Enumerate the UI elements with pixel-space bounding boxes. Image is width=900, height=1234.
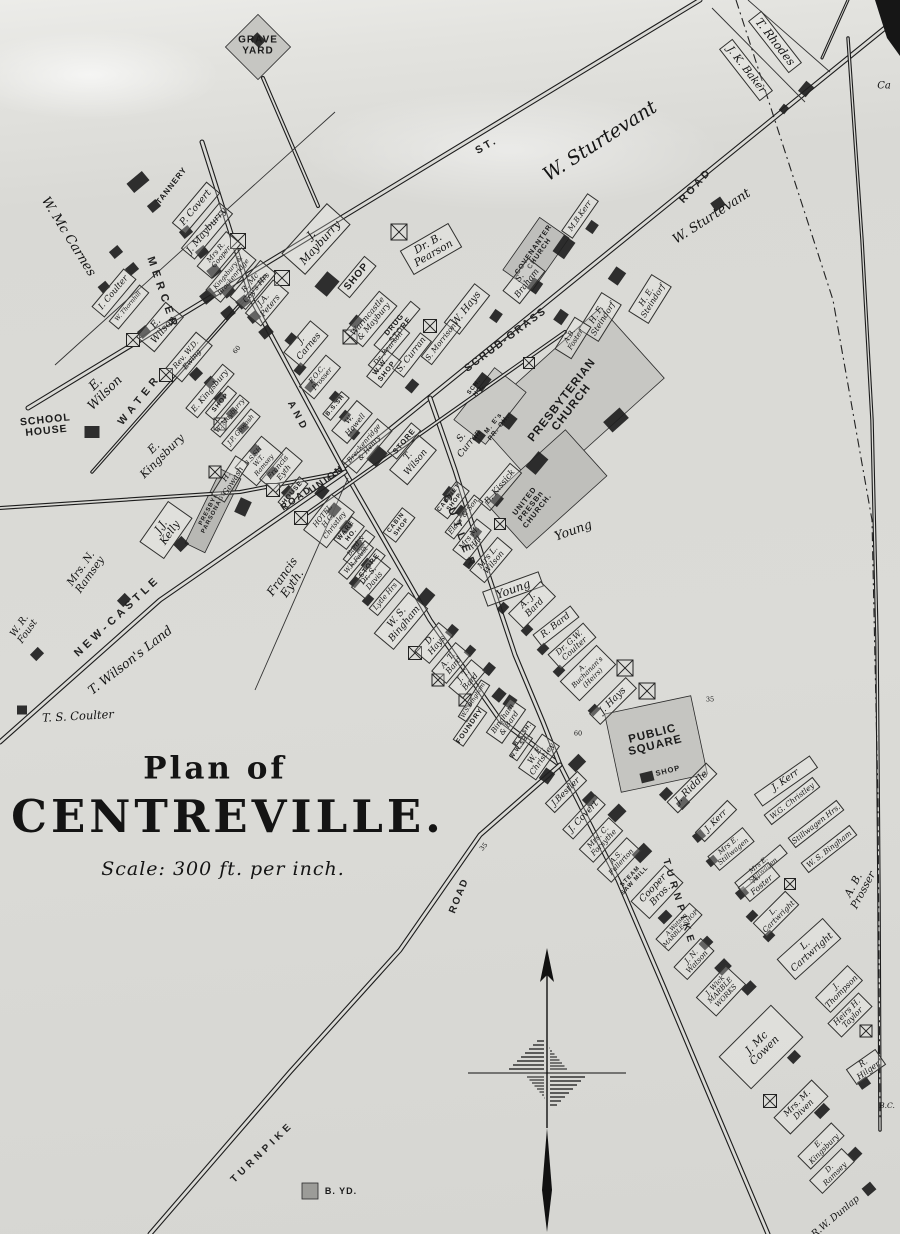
owner-label: Dr. B. Pearson xyxy=(400,223,462,275)
street-label: UNION xyxy=(308,464,347,496)
owner-label: J. Wick MARBLE WORKS xyxy=(696,965,746,1016)
map-stage: GRAVE YARDT. RhodesJ. K. BakerCaW. Sturt… xyxy=(0,0,900,1234)
owner-label: R. Hilger xyxy=(846,1049,886,1085)
poi-label: PUBLIC SQUARE xyxy=(624,721,683,758)
street-label: ST. xyxy=(474,135,500,157)
owner-label: T. S. Coulter xyxy=(42,708,114,724)
owner-label: Mrs. N. Ramsey xyxy=(65,548,107,595)
owner-label: J.J. Kelly xyxy=(139,501,192,559)
owner-label: W. Sturtevant xyxy=(540,97,661,185)
street-label: SCRUB-GRASS xyxy=(463,305,550,374)
poi-label: SHOP xyxy=(337,256,376,298)
lot-number-label: 35 xyxy=(479,842,490,853)
street-label: AND xyxy=(284,400,309,435)
poi-label: SCHOOL HOUSE xyxy=(20,412,73,439)
owner-label: J. K. Baker xyxy=(719,39,773,101)
poi-label: UNITED PRESBn CHURCH. xyxy=(509,482,553,529)
owner-label: S. Curran xyxy=(448,422,483,459)
owner-label: W. R. Foust xyxy=(8,612,40,645)
owner-label: B.C. xyxy=(879,1102,895,1110)
owner-label: J. Mc Cowen xyxy=(719,1005,804,1090)
poi-label: CABIN SHOP xyxy=(382,507,415,543)
owner-label: A. B. Prosser xyxy=(840,865,879,911)
lot-number-label: 60 xyxy=(574,731,582,738)
poi-label: SHOP xyxy=(655,764,681,778)
owner-label: M.B.Kerr xyxy=(561,193,599,239)
poi-label: PRESBYTERIAN CHURCH xyxy=(526,356,608,451)
owner-label: L. Cartwright xyxy=(777,918,842,980)
owner-label: T. Rhodes xyxy=(748,11,802,73)
owner-label: W. Mc Carnes xyxy=(38,195,98,279)
map-title-line1: Plan of xyxy=(143,753,287,786)
owner-label: E. Wilson xyxy=(76,364,125,413)
owner-label: Young xyxy=(553,517,594,543)
poi-label: GRAVE YARD xyxy=(238,35,278,56)
poi-label: M. E's PR. CH. xyxy=(482,410,512,443)
owner-label: A.B. Foster xyxy=(554,317,591,360)
owner-label: J. Mayburry xyxy=(281,203,350,275)
owner-label: E. Kingsbury xyxy=(130,424,187,481)
lot-number-label: 60 xyxy=(232,345,243,356)
street-label: TURNPIKE xyxy=(229,1120,296,1185)
owner-label: A. Foster xyxy=(738,862,781,902)
map-labels-layer: GRAVE YARDT. RhodesJ. K. BakerCaW. Sturt… xyxy=(0,0,900,1234)
owner-label: H. Gowash xyxy=(211,455,249,502)
owner-label: Mrs. M. Diven xyxy=(773,1079,828,1134)
owner-label: Rev. W.D. Ewing xyxy=(165,332,213,383)
poi-label: B. YD. xyxy=(325,1187,357,1197)
map-scale-note: Scale: 300 ft. per inch. xyxy=(101,859,345,879)
owner-label: Mrs E. Stillwagen xyxy=(707,827,754,871)
owner-label: S. Braham xyxy=(502,258,545,305)
owner-label: L. Cartwright xyxy=(753,891,800,938)
owner-label: Ca xyxy=(877,82,891,93)
owner-label: H. E. Steindorf xyxy=(628,274,672,324)
poi-label: SCH. HO. xyxy=(466,378,487,400)
owner-label: R.W. Dunlap xyxy=(810,1194,862,1234)
owner-label: Francis Eyth. xyxy=(264,555,309,605)
map-title-line2: CENTREVILLE. xyxy=(11,793,445,841)
street-label: ROAD xyxy=(448,877,472,916)
street-label: ROAD xyxy=(678,166,715,205)
poi-label: TANNERY xyxy=(155,166,189,207)
lot-number-label: 35 xyxy=(706,697,714,704)
owner-label: J.Bestler xyxy=(545,771,587,813)
